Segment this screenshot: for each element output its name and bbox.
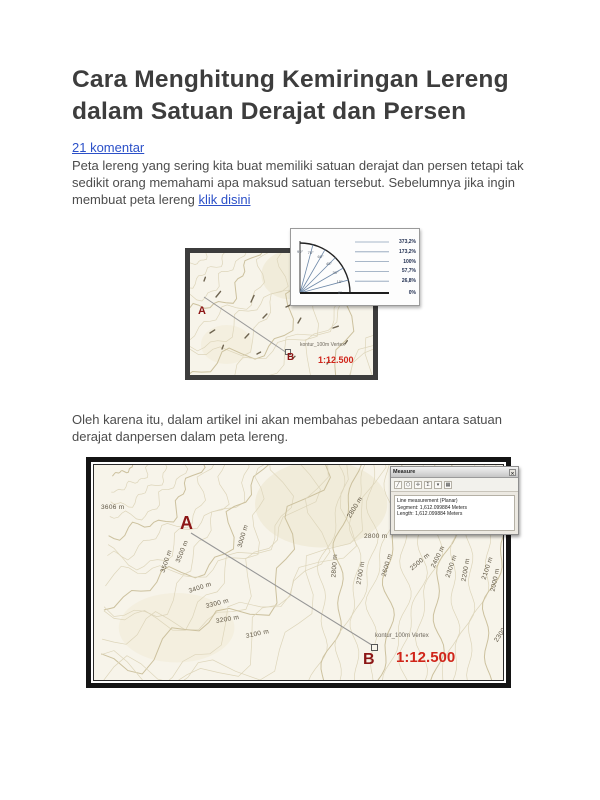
- feature-measure-icon[interactable]: ✛: [414, 481, 422, 489]
- klik-disini-link[interactable]: klik disini: [198, 192, 250, 207]
- percent-label: 373,2%: [399, 239, 416, 245]
- percent-label: 100%: [403, 259, 416, 265]
- close-icon[interactable]: ✕: [509, 469, 516, 476]
- degree-label: 0°: [338, 291, 342, 295]
- contour-elevation-label: 3606 m: [101, 504, 124, 511]
- degree-label: 75°: [308, 251, 314, 255]
- degree-label: 60°: [318, 255, 324, 259]
- point-a-label: A: [180, 513, 193, 534]
- map-scale: 1:12.500: [396, 649, 455, 666]
- degree-label: 30°: [333, 271, 339, 275]
- map-scale: 1:12.500: [318, 355, 354, 365]
- second-paragraph: Oleh karena itu, dalam artikel ini akan …: [72, 411, 538, 445]
- degree-label: 90°: [297, 250, 303, 254]
- units-dropdown-icon[interactable]: ▾: [434, 481, 442, 489]
- measure-length-line: Length: 1,612.099884 Meters: [397, 511, 512, 518]
- figure-slope-small: A kontur_100m Vertex B 1:12.500 373,2%17…: [185, 228, 418, 386]
- vertex-marker: [371, 644, 378, 651]
- line-measure-icon[interactable]: ╱: [394, 481, 402, 489]
- degree-label: 15°: [337, 280, 343, 284]
- intro-paragraph: Peta lereng yang sering kita buat memili…: [72, 157, 538, 208]
- measure-readout: Line measurement (Planar) Segment: 1,612…: [394, 495, 515, 531]
- figure-slope-large: 3606 m3500 m3500 m3400 m3300 m3200 m3100…: [86, 457, 511, 688]
- percent-label: 0%: [409, 290, 416, 296]
- article-page: Cara Menghitung Kemiringan Lereng dalam …: [0, 0, 600, 800]
- page-title: Cara Menghitung Kemiringan Lereng dalam …: [72, 64, 552, 128]
- comments-link[interactable]: 21 komentar: [72, 140, 144, 155]
- degree-percent-chart: 373,2%173,2%100%57,7%26,8%0%90°75°60°45°…: [290, 228, 420, 306]
- options-icon[interactable]: ▦: [444, 481, 452, 489]
- point-b-label: B: [363, 651, 375, 669]
- contour-elevation-label: 2800 m: [364, 533, 387, 540]
- point-b-label: B: [287, 352, 294, 363]
- degree-label: 45°: [326, 262, 332, 266]
- measure-dialog[interactable]: Measure ✕ ╱⬡✛Σ▾▦ Line measurement (Plana…: [390, 466, 519, 535]
- percent-label: 173,2%: [399, 249, 416, 255]
- area-measure-icon[interactable]: ⬡: [404, 481, 412, 489]
- measure-dialog-titlebar[interactable]: Measure ✕: [391, 467, 518, 478]
- intro-text: Peta lereng yang sering kita buat memili…: [72, 158, 524, 207]
- measure-dialog-title: Measure: [393, 469, 415, 475]
- vertex-label: kontur_100m Vertex: [375, 633, 429, 639]
- measure-toolbar: ╱⬡✛Σ▾▦: [391, 478, 518, 492]
- percent-label: 26,8%: [402, 278, 416, 284]
- sum-icon[interactable]: Σ: [424, 481, 432, 489]
- point-a-label: A: [198, 305, 206, 317]
- percent-label: 57,7%: [402, 268, 416, 274]
- protractor-labels: 373,2%173,2%100%57,7%26,8%0%90°75°60°45°…: [291, 229, 419, 305]
- vertex-label: kontur_100m Vertex: [300, 342, 345, 348]
